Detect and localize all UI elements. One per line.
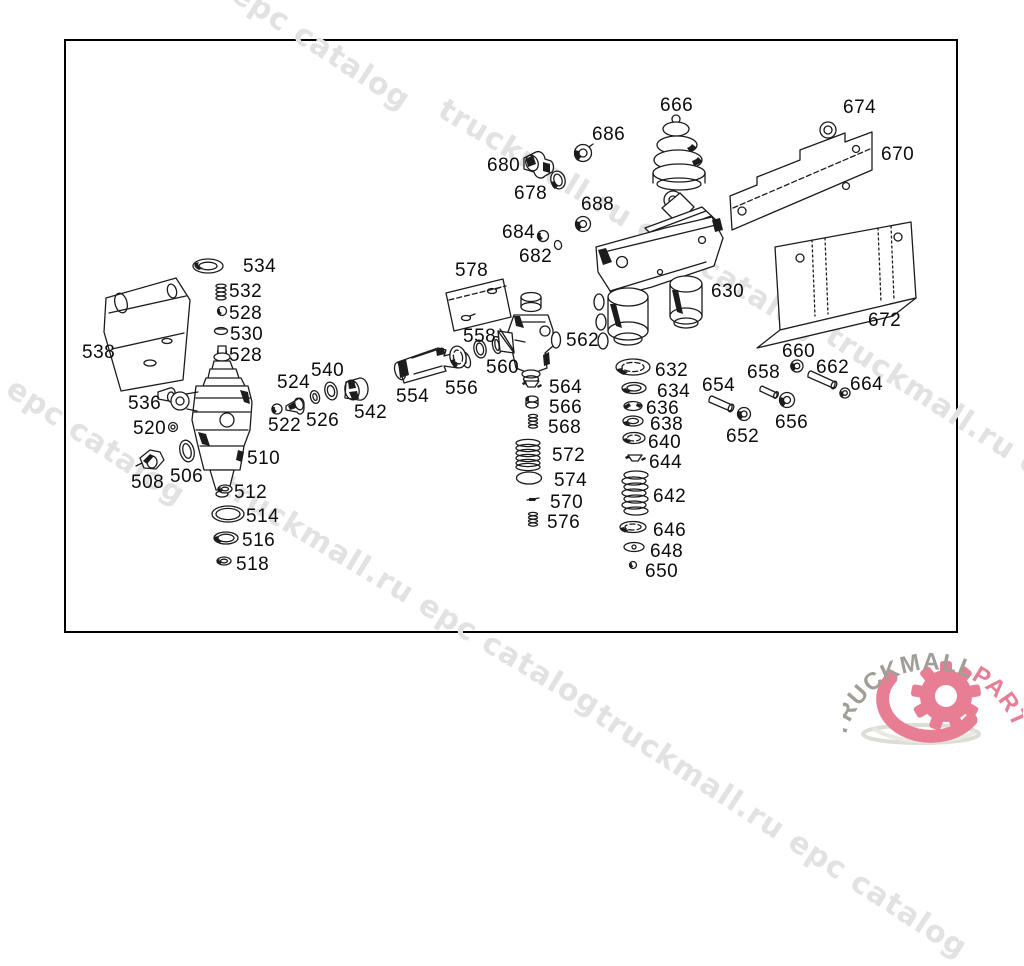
part-label-534: 534 xyxy=(243,256,276,278)
part-label-630: 630 xyxy=(711,281,744,303)
part-label-532: 532 xyxy=(229,281,262,303)
part-label-674: 674 xyxy=(843,97,876,119)
part-label-536: 536 xyxy=(128,393,161,415)
part-label-528: 528 xyxy=(229,345,262,367)
part-label-662: 662 xyxy=(816,357,849,379)
part-label-670: 670 xyxy=(881,144,914,166)
part-label-530: 530 xyxy=(230,324,263,346)
part-label-642: 642 xyxy=(653,486,686,508)
part-label-652: 652 xyxy=(726,426,759,448)
part-label-680: 680 xyxy=(487,155,520,177)
part-label-520: 520 xyxy=(133,418,166,440)
part-label-648: 648 xyxy=(650,541,683,563)
part-label-656: 656 xyxy=(775,412,808,434)
part-label-560: 560 xyxy=(486,357,519,379)
part-label-506: 506 xyxy=(170,466,203,488)
part-label-524: 524 xyxy=(277,372,310,394)
part-label-566: 566 xyxy=(549,397,582,419)
part-label-686: 686 xyxy=(592,124,625,146)
page: { "diagram": { "type": "exploded-parts-d… xyxy=(0,0,1024,750)
part-label-522: 522 xyxy=(268,415,301,437)
part-label-666: 666 xyxy=(660,95,693,117)
part-label-578: 578 xyxy=(455,260,488,282)
part-label-688: 688 xyxy=(581,194,614,216)
part-label-558: 558 xyxy=(463,326,496,348)
part-label-516: 516 xyxy=(242,530,275,552)
part-label-554: 554 xyxy=(396,386,429,408)
part-label-632: 632 xyxy=(655,360,688,382)
part-label-540: 540 xyxy=(311,360,344,382)
part-label-508: 508 xyxy=(131,472,164,494)
part-label-678: 678 xyxy=(514,183,547,205)
truckmallparts-logo: TRUCKMALLPARTS xyxy=(843,636,1023,755)
part-label-518: 518 xyxy=(236,554,269,576)
part-label-562: 562 xyxy=(566,330,599,352)
part-label-526: 526 xyxy=(306,410,339,432)
part-label-528: 528 xyxy=(229,303,262,325)
part-label-650: 650 xyxy=(645,561,678,583)
part-label-556: 556 xyxy=(445,378,478,400)
part-label-646: 646 xyxy=(653,520,686,542)
part-label-538: 538 xyxy=(82,342,115,364)
part-label-664: 664 xyxy=(850,374,883,396)
part-label-568: 568 xyxy=(548,417,581,439)
logo-graphic: TRUCKMALLPARTS xyxy=(843,636,1023,750)
part-label-682: 682 xyxy=(519,246,552,268)
part-label-572: 572 xyxy=(552,445,585,467)
part-label-514: 514 xyxy=(246,506,279,528)
part-label-672: 672 xyxy=(868,310,901,332)
part-label-570: 570 xyxy=(550,492,583,514)
part-label-654: 654 xyxy=(702,375,735,397)
part-label-684: 684 xyxy=(502,222,535,244)
part-label-640: 640 xyxy=(648,432,681,454)
part-label-660: 660 xyxy=(782,341,815,363)
part-label-644: 644 xyxy=(649,452,682,474)
part-label-574: 574 xyxy=(554,470,587,492)
part-label-542: 542 xyxy=(354,402,387,424)
part-label-512: 512 xyxy=(234,482,267,504)
part-label-510: 510 xyxy=(247,448,280,470)
part-label-564: 564 xyxy=(549,377,582,399)
part-label-576: 576 xyxy=(547,512,580,534)
part-label-658: 658 xyxy=(747,362,780,384)
